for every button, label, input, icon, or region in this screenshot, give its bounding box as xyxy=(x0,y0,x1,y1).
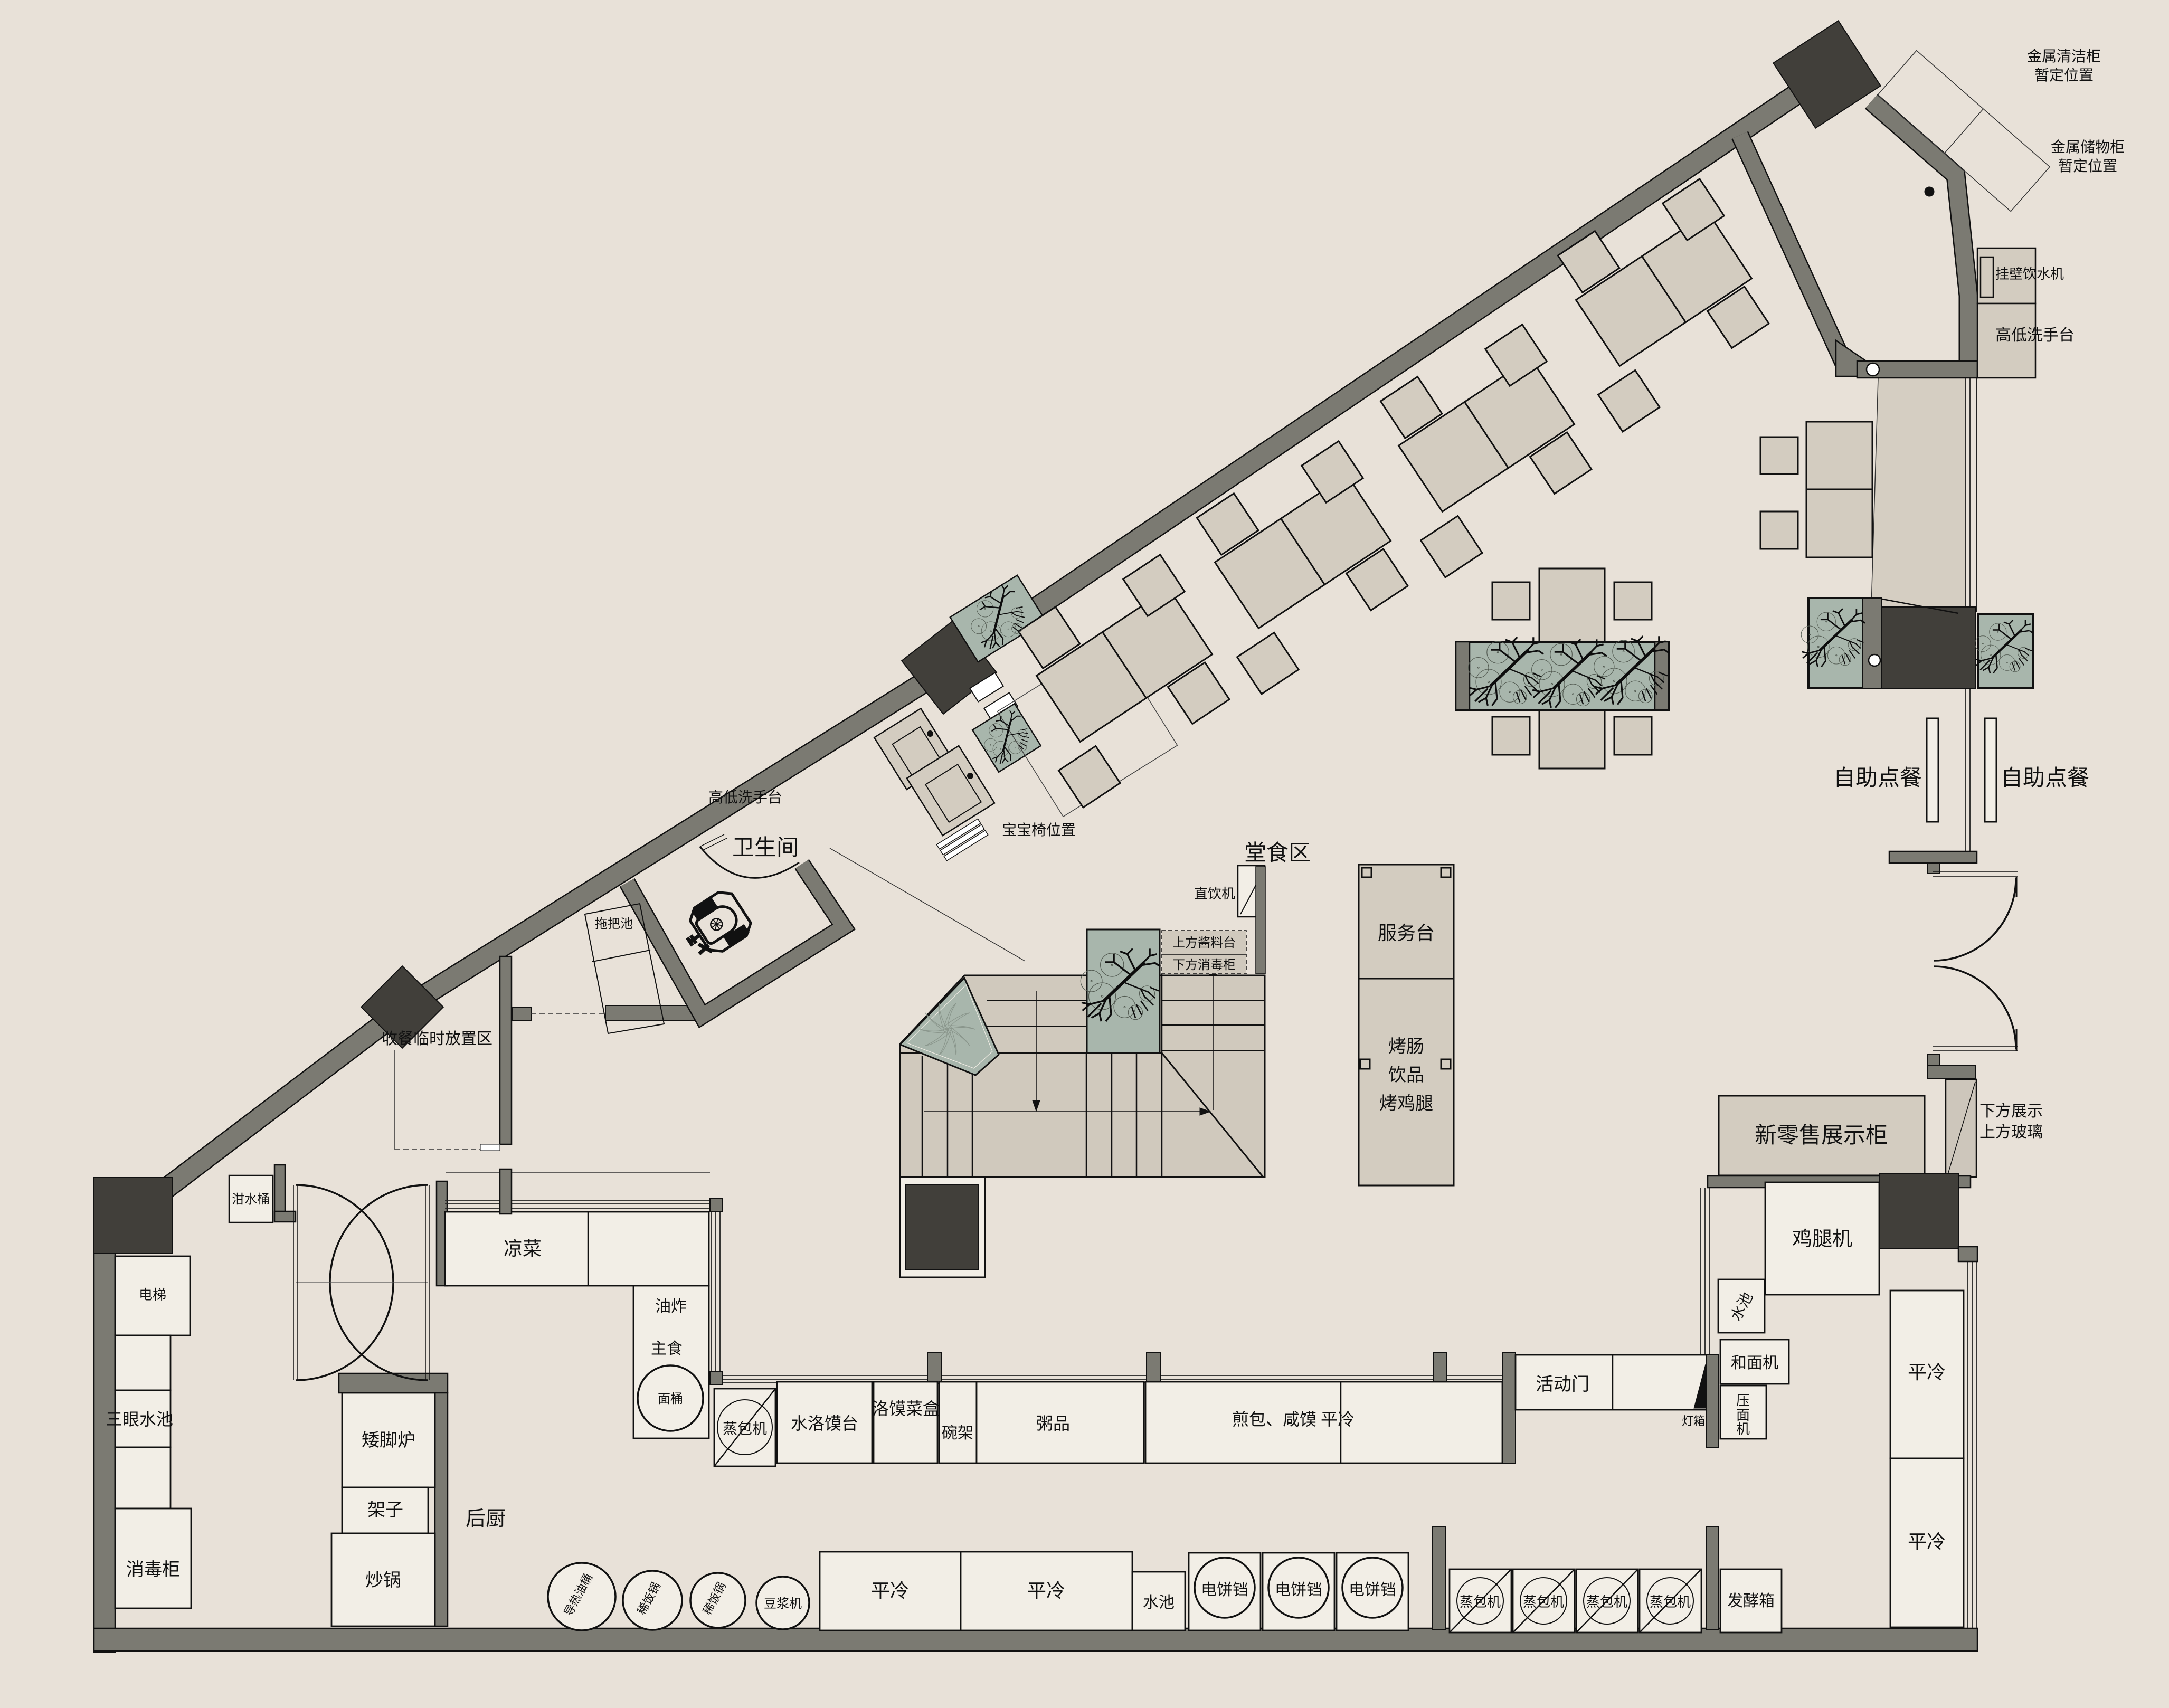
svg-text:鸡腿机: 鸡腿机 xyxy=(1792,1228,1852,1250)
svg-text:收餐临时放置区: 收餐临时放置区 xyxy=(382,1030,492,1048)
svg-text:金属储物柜: 金属储物柜 xyxy=(2051,139,2125,156)
svg-text:蒸包机: 蒸包机 xyxy=(1460,1595,1501,1610)
svg-text:金属清洁柜: 金属清洁柜 xyxy=(2027,48,2101,65)
svg-text:主食: 主食 xyxy=(651,1340,683,1358)
svg-text:蒸包机: 蒸包机 xyxy=(723,1420,767,1437)
svg-text:后厨: 后厨 xyxy=(466,1508,506,1530)
svg-text:和面机: 和面机 xyxy=(1731,1354,1778,1372)
svg-text:暂定位置: 暂定位置 xyxy=(2058,158,2117,175)
svg-text:压: 压 xyxy=(1736,1393,1750,1408)
svg-text:饮品: 饮品 xyxy=(1388,1065,1424,1085)
svg-text:水洛馍台: 水洛馍台 xyxy=(791,1414,858,1433)
svg-text:面: 面 xyxy=(1736,1408,1750,1423)
svg-text:烤鸡腿: 烤鸡腿 xyxy=(1379,1094,1433,1114)
svg-text:高低洗手台: 高低洗手台 xyxy=(1995,327,2075,344)
svg-text:平冷: 平冷 xyxy=(1908,1531,1946,1552)
svg-text:煎包、咸馍 平冷: 煎包、咸馍 平冷 xyxy=(1232,1410,1355,1429)
svg-text:发酵箱: 发酵箱 xyxy=(1727,1592,1775,1610)
svg-text:碗架: 碗架 xyxy=(942,1425,973,1442)
svg-text:水池: 水池 xyxy=(1143,1594,1175,1611)
svg-text:高低洗手台: 高低洗手台 xyxy=(708,789,782,806)
svg-text:下方展示: 下方展示 xyxy=(1979,1103,2043,1120)
svg-text:直饮机: 直饮机 xyxy=(1194,886,1235,902)
svg-text:蒸包机: 蒸包机 xyxy=(1586,1595,1627,1610)
svg-text:自助点餐: 自助点餐 xyxy=(2001,766,2089,791)
svg-text:堂食区: 堂食区 xyxy=(1244,841,1311,866)
svg-text:电梯: 电梯 xyxy=(139,1287,166,1303)
svg-text:豆浆机: 豆浆机 xyxy=(764,1597,802,1611)
svg-text:矮脚炉: 矮脚炉 xyxy=(362,1430,415,1450)
svg-text:平冷: 平冷 xyxy=(1027,1580,1065,1601)
svg-text:灯箱: 灯箱 xyxy=(1682,1415,1705,1428)
svg-text:机: 机 xyxy=(1736,1421,1750,1437)
svg-text:挂壁饮水机: 挂壁饮水机 xyxy=(1995,267,2064,282)
svg-text:电饼铛: 电饼铛 xyxy=(1201,1581,1248,1599)
svg-text:架子: 架子 xyxy=(367,1501,403,1520)
svg-text:平冷: 平冷 xyxy=(871,1580,909,1601)
svg-text:粥品: 粥品 xyxy=(1036,1414,1070,1433)
svg-text:电饼铛: 电饼铛 xyxy=(1275,1581,1322,1599)
svg-text:电饼铛: 电饼铛 xyxy=(1349,1581,1396,1599)
svg-text:平冷: 平冷 xyxy=(1908,1362,1946,1383)
svg-text:蒸包机: 蒸包机 xyxy=(1523,1595,1564,1610)
svg-text:油炸: 油炸 xyxy=(655,1298,687,1315)
svg-text:暂定位置: 暂定位置 xyxy=(2034,67,2094,84)
svg-text:上方酱料台: 上方酱料台 xyxy=(1172,936,1236,950)
svg-text:三眼水池: 三眼水池 xyxy=(106,1410,173,1429)
svg-text:消毒柜: 消毒柜 xyxy=(126,1560,180,1580)
svg-text:自助点餐: 自助点餐 xyxy=(1833,766,1922,791)
svg-text:炒锅: 炒锅 xyxy=(365,1570,401,1590)
svg-text:洛馍菜盒: 洛馍菜盒 xyxy=(872,1399,940,1418)
svg-text:面桶: 面桶 xyxy=(658,1392,683,1406)
svg-text:活动门: 活动门 xyxy=(1536,1374,1589,1394)
svg-text:服务台: 服务台 xyxy=(1378,923,1435,944)
svg-text:泔水桶: 泔水桶 xyxy=(232,1192,270,1207)
svg-text:凉菜: 凉菜 xyxy=(504,1238,542,1259)
svg-text:拖把池: 拖把池 xyxy=(595,917,633,931)
svg-text:卫生间: 卫生间 xyxy=(732,836,799,860)
svg-text:下方消毒柜: 下方消毒柜 xyxy=(1172,958,1236,972)
svg-text:蒸包机: 蒸包机 xyxy=(1650,1595,1691,1610)
svg-text:宝宝椅位置: 宝宝椅位置 xyxy=(1002,822,1076,839)
svg-text:上方玻璃: 上方玻璃 xyxy=(1979,1124,2043,1141)
svg-text:烤肠: 烤肠 xyxy=(1388,1037,1424,1057)
svg-text:新零售展示柜: 新零售展示柜 xyxy=(1755,1124,1888,1148)
